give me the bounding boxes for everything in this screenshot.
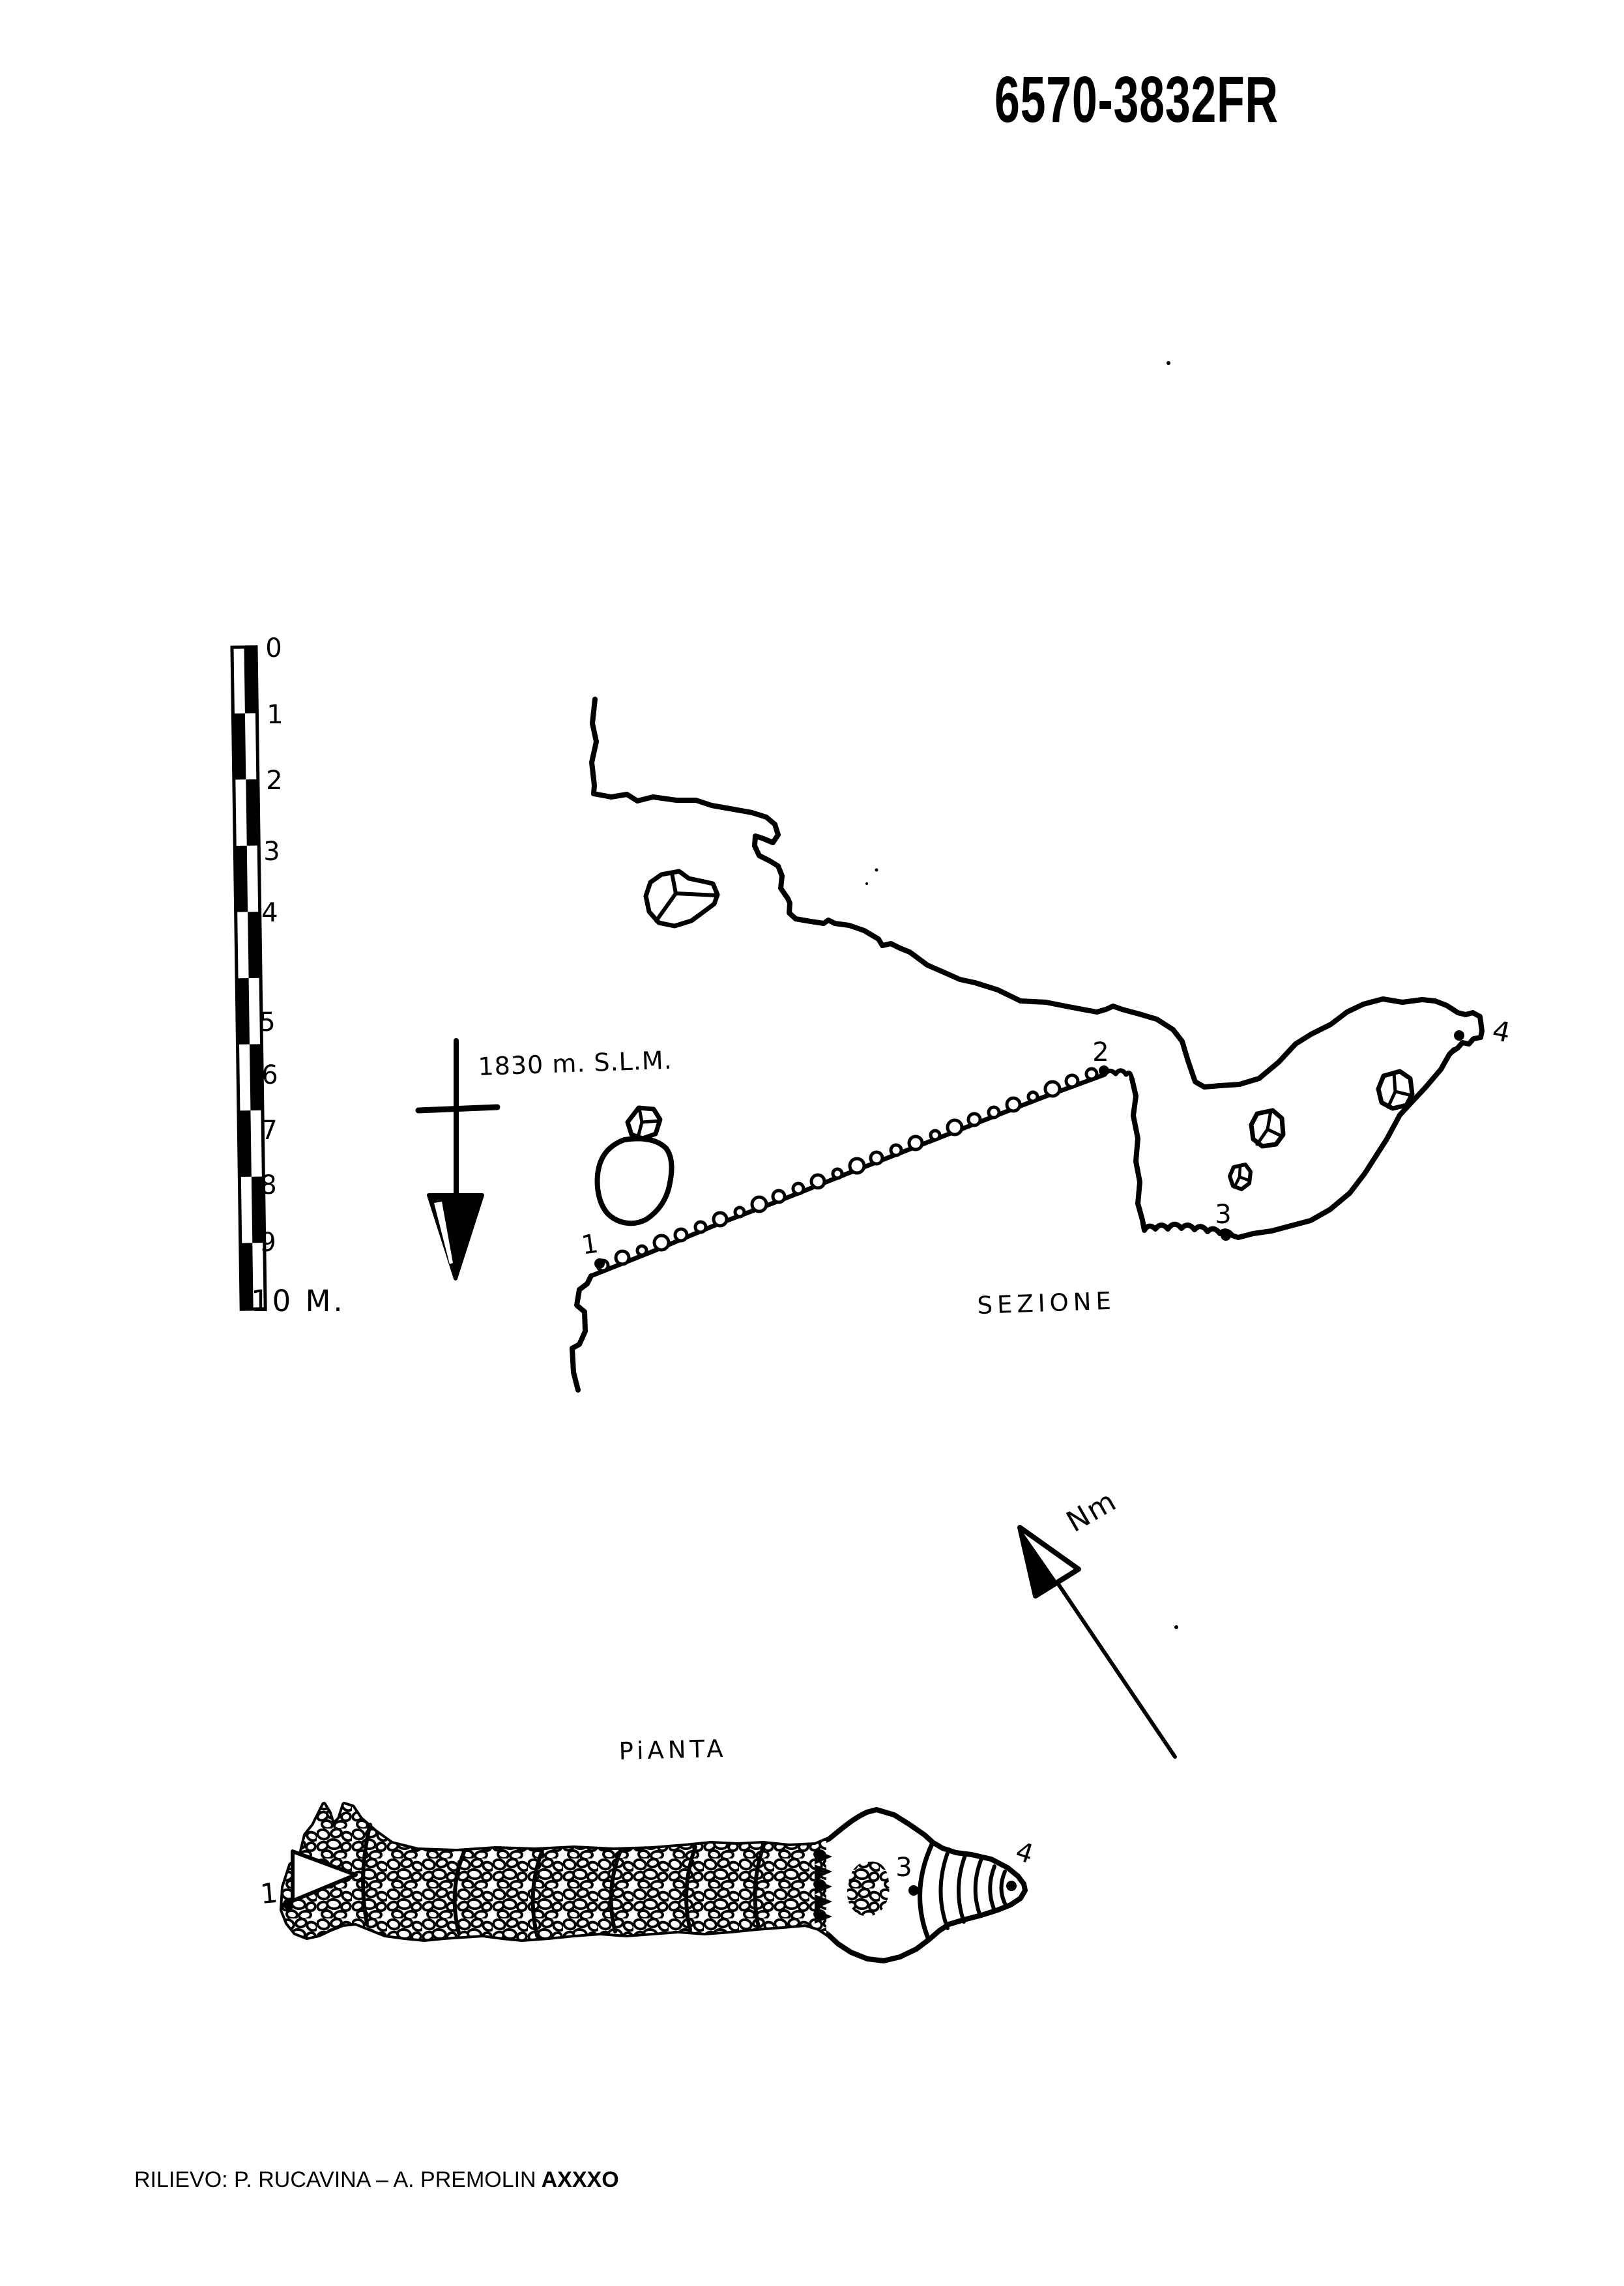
altitude-marker: 1830 m. S.L.M. [418, 1041, 673, 1279]
scale-bar: 0 1 2 3 4 5 6 7 8 9 10 M. [232, 633, 345, 1318]
survey-drawing: 0 1 2 3 4 5 6 7 8 9 10 M. [0, 0, 1624, 2286]
section-ceiling-outline [592, 699, 1482, 1087]
plan-view: 1 3 4 PiANTA [259, 1735, 1037, 1965]
scale-tick-3: 3 [263, 837, 280, 867]
north-arrow: Nm [1020, 1484, 1175, 1757]
scanned-cave-survey-page: 6570-3832FR [0, 0, 1624, 2286]
boulder-right-middle [1251, 1110, 1283, 1146]
plan-title: PiANTA [618, 1735, 727, 1765]
station-label-3: 3 [1215, 1200, 1231, 1230]
plan-station-label-1: 1 [259, 1877, 279, 1910]
scale-tick-0: 0 [265, 633, 282, 663]
station-label-4: 4 [1490, 1014, 1513, 1049]
plan-station-dot-4 [1006, 1881, 1017, 1891]
north-arrow-shaft [1057, 1582, 1175, 1757]
plan-station-dot-3 [908, 1885, 919, 1896]
credit-team: AXXXO [542, 2167, 619, 2192]
scale-tick-1: 1 [267, 700, 283, 730]
altitude-label: 1830 m. S.L.M. [478, 1046, 673, 1081]
boulder-upper-left [646, 871, 718, 926]
scale-tick-4: 4 [261, 898, 278, 928]
boulder-right-lower [1230, 1165, 1251, 1189]
scale-tick-8: 8 [260, 1170, 276, 1200]
survey-credit: RILIEVO: P. RUCAVINA – A. PREMOLINAXXXO [134, 2167, 619, 2193]
station-dot-1 [594, 1258, 605, 1269]
scale-end-label: 10 M. [251, 1284, 345, 1318]
credit-text: RILIEVO: P. RUCAVINA – A. PREMOLIN [134, 2167, 536, 2192]
boulder-right-upper [1378, 1071, 1412, 1108]
scale-tick-5: 5 [259, 1007, 275, 1037]
section-view: 1 2 3 4 SEZIONE [572, 699, 1513, 1390]
scale-tick-6: 6 [261, 1060, 278, 1090]
plan-station-label-4: 4 [1012, 1836, 1037, 1870]
section-entrance-lower-wall [572, 1276, 591, 1390]
scan-specks [865, 361, 1178, 1629]
boulder-near-altitude-arrow [598, 1108, 672, 1223]
station-dot-3 [1221, 1230, 1231, 1241]
scale-tick-7: 7 [261, 1116, 277, 1146]
altitude-arrow-crossbar [418, 1107, 497, 1110]
station-label-2: 2 [1092, 1037, 1109, 1067]
scale-tick-9: 9 [259, 1228, 276, 1258]
north-label: Nm [1061, 1484, 1123, 1539]
station-dot-4 [1454, 1030, 1464, 1041]
scale-tick-2: 2 [266, 766, 282, 796]
plan-station-dot-1 [283, 1899, 293, 1909]
station-label-1: 1 [579, 1229, 600, 1261]
plan-chamber-cobble-patch [847, 1862, 890, 1917]
section-stations: 1 2 3 4 [579, 1014, 1513, 1269]
section-title: SEZIONE [977, 1287, 1116, 1320]
plan-station-label-3: 3 [895, 1853, 912, 1883]
